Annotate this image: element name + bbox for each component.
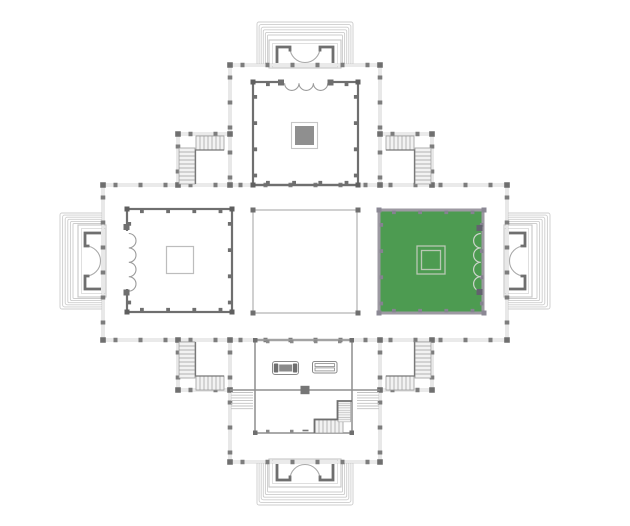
east-portico	[504, 213, 550, 309]
sofa	[273, 362, 299, 375]
north-room-platform	[295, 126, 314, 145]
center-post	[301, 386, 310, 394]
staircase-se	[386, 342, 431, 390]
west-room-door-gap	[123, 231, 132, 289]
west-room[interactable]	[123, 207, 235, 315]
south-room[interactable]	[230, 338, 380, 435]
north-room[interactable]	[251, 78, 361, 188]
east-room-highlight[interactable]	[379, 210, 483, 313]
staircase-south-room	[315, 401, 353, 433]
west-room-platform-outline	[167, 247, 194, 274]
east-room[interactable]	[377, 208, 487, 316]
floor-plan	[0, 0, 630, 526]
floor-plan-svg	[0, 0, 630, 526]
table	[313, 362, 338, 374]
aisle-steps-east	[357, 393, 379, 409]
staircase-sw	[179, 342, 224, 390]
north-room-door-gap	[282, 78, 328, 87]
south-portico	[257, 459, 353, 505]
west-portico	[60, 213, 106, 309]
north-portico	[257, 22, 353, 68]
aisle-steps-west	[231, 393, 253, 409]
staircase-nw	[179, 136, 224, 184]
staircase-ne	[386, 136, 431, 184]
central-hall[interactable]	[251, 208, 361, 316]
